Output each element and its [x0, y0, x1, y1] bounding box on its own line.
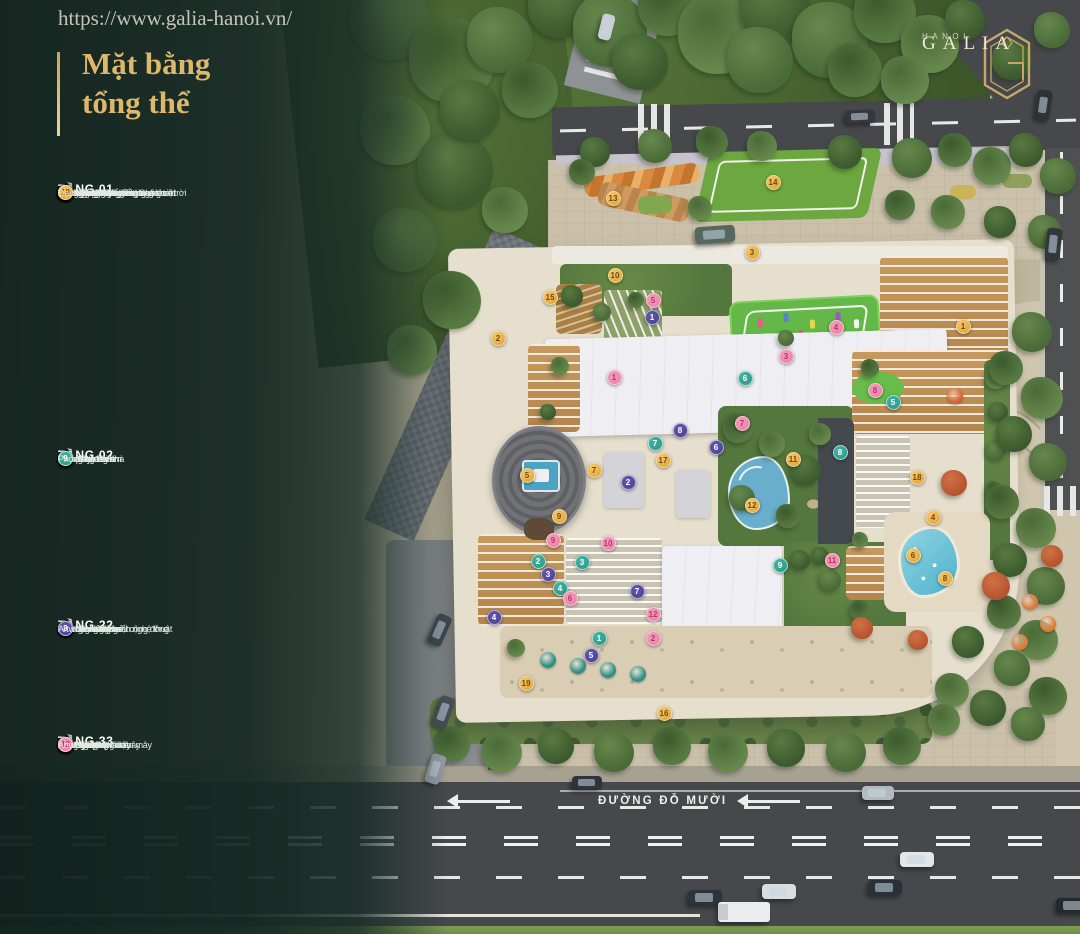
map-marker-tang-02-8: 8: [833, 445, 848, 460]
brand-city: HANOI: [922, 32, 970, 41]
map-marker-tang-02-9: 9: [773, 558, 788, 573]
map-marker-tang-22-4: 4: [487, 610, 502, 625]
map-marker-tang-02-2: 2: [531, 554, 546, 569]
map-marker-tang-33-1: 1: [607, 370, 622, 385]
map-marker-tang-22-1: 1: [645, 310, 660, 325]
map-marker-tang-22-3: 3: [541, 567, 556, 582]
title-accent-rule: [57, 52, 60, 136]
map-marker-tang-22-8: 8: [673, 423, 688, 438]
map-marker-tang-01-5: 5: [520, 468, 535, 483]
map-marker-tang-02-3: 3: [575, 555, 590, 570]
map-marker-tang-01-3: 3: [745, 245, 760, 260]
map-marker-tang-01-6: 6: [906, 548, 921, 563]
masterplan-screenshot: ĐƯỜNG ĐỖ MƯỜI 12345678910111213141516171…: [0, 0, 1080, 934]
map-marker-tang-22-7: 7: [630, 584, 645, 599]
map-marker-tang-02-7: 7: [648, 436, 663, 451]
map-marker-tang-22-6: 6: [709, 440, 724, 455]
map-marker-tang-01-9: 9: [552, 509, 567, 524]
map-marker-tang-02-1: 1: [592, 631, 607, 646]
watermark-url: https://www.galia-hanoi.vn/: [58, 6, 292, 31]
map-marker-tang-01-14: 14: [766, 175, 781, 190]
map-marker-tang-01-18: 18: [910, 470, 925, 485]
legend-label: Phòng học: [58, 454, 98, 464]
map-marker-tang-01-15: 15: [543, 290, 558, 305]
map-marker-tang-02-5: 5: [886, 395, 901, 410]
legend-label: Artwork nghệ thuật: [58, 740, 128, 750]
map-marker-tang-33-10: 10: [601, 536, 616, 551]
map-marker-tang-01-1: 1: [956, 319, 971, 334]
map-marker-tang-01-7: 7: [587, 463, 602, 478]
map-marker-tang-01-17: 17: [656, 453, 671, 468]
page-title-line1: Mặt bằng: [82, 44, 210, 83]
page-title: Mặt bằng tổng thể: [82, 44, 210, 122]
map-marker-tang-33-4: 4: [829, 320, 844, 335]
legend-label: Đại sảnh thương mại: [58, 188, 137, 198]
map-marker-tang-01-4: 4: [926, 510, 941, 525]
map-marker-tang-33-9: 9: [546, 533, 561, 548]
map-marker-tang-02-6: 6: [738, 371, 753, 386]
map-marker-tang-22-5: 5: [584, 648, 599, 663]
map-marker-tang-01-13: 13: [606, 191, 621, 206]
map-marker-tang-01-10: 10: [608, 268, 623, 283]
map-marker-tang-01-2: 2: [491, 331, 506, 346]
map-marker-tang-33-2: 2: [646, 631, 661, 646]
map-marker-tang-33-8: 8: [868, 383, 883, 398]
map-marker-tang-33-6: 6: [563, 591, 578, 606]
map-marker-tang-33-11: 11: [825, 553, 840, 568]
legend-panel: [0, 0, 448, 934]
legend-label: Artwork nghệ thuật: [58, 624, 128, 634]
map-marker-tang-22-2: 2: [621, 475, 636, 490]
map-marker-tang-33-12: 12: [646, 607, 661, 622]
map-marker-tang-33-3: 3: [779, 349, 794, 364]
map-marker-tang-01-11: 11: [786, 452, 801, 467]
map-marker-tang-33-5: 5: [646, 293, 661, 308]
map-marker-tang-01-19: 19: [519, 676, 534, 691]
map-marker-tang-33-7: 7: [735, 416, 750, 431]
map-marker-tang-01-8: 8: [938, 571, 953, 586]
page-title-line2: tổng thể: [82, 83, 210, 122]
map-marker-tang-01-16: 16: [657, 706, 672, 721]
map-marker-tang-01-12: 12: [745, 498, 760, 513]
